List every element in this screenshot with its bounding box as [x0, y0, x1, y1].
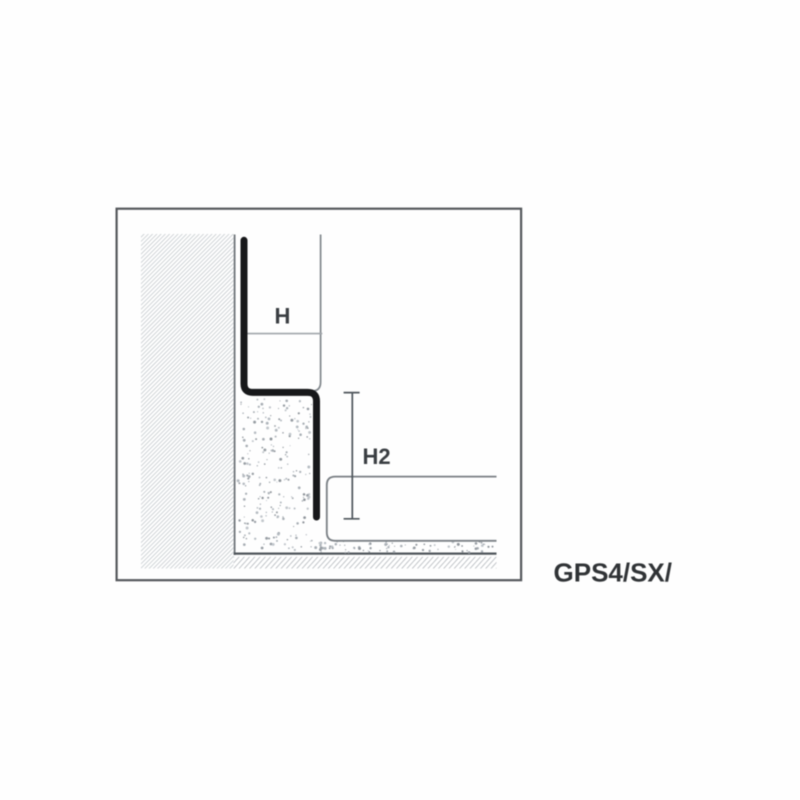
svg-text:GPS4/SX/: GPS4/SX/	[554, 558, 673, 588]
svg-text:H: H	[275, 304, 291, 329]
svg-text:H2: H2	[363, 444, 391, 469]
